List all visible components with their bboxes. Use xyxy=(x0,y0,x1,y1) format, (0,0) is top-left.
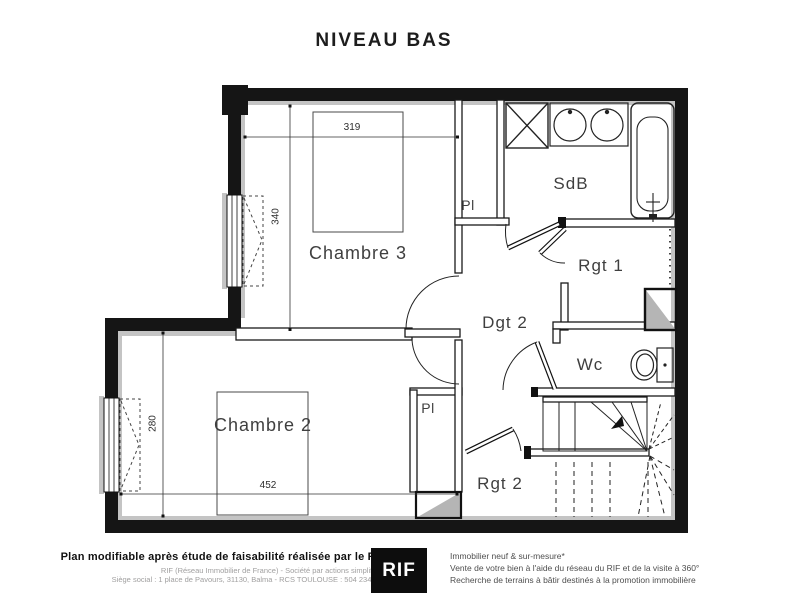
room-label-sdb: SdB xyxy=(541,174,601,194)
footer-fineprint-1: RIF (Réseau Immobilier de France) - Soci… xyxy=(52,566,386,575)
dimension-452: 452 xyxy=(248,480,288,491)
wall-lining xyxy=(99,101,675,520)
page-title: NIVEAU BAS xyxy=(254,30,514,52)
room-label-chambre-2: Chambre 2 xyxy=(205,415,321,436)
room-label-chambre-3: Chambre 3 xyxy=(300,243,416,264)
room-label-rgt-2: Rgt 2 xyxy=(465,474,535,494)
double-sink-icon xyxy=(550,103,628,146)
exterior-walls xyxy=(105,85,688,533)
footer-fineprint-2: Siège social : 1 place de Pavours, 31130… xyxy=(52,575,386,584)
doors xyxy=(406,224,565,452)
footer-service-2: Vente de votre bien à l'aide du réseau d… xyxy=(450,562,760,574)
room-label-wc: Wc xyxy=(560,355,620,375)
room-label-pl-top: Pl xyxy=(455,197,481,213)
page: { "title": "NIVEAU BAS", "rooms": { "cha… xyxy=(0,0,800,600)
dimension-280: 280 xyxy=(148,409,159,439)
duct-pl-bottom xyxy=(416,492,461,518)
footer-service-3: Recherche de terrains à bâtir destinés à… xyxy=(450,574,760,586)
room-label-rgt-1: Rgt 1 xyxy=(566,256,636,276)
toilet-icon xyxy=(631,348,673,382)
rif-logo-text: RIF xyxy=(382,560,416,582)
room-label-pl-bottom: Pl xyxy=(415,400,441,416)
room-label-dgt-2: Dgt 2 xyxy=(470,313,540,333)
floor-plan-drawing xyxy=(0,0,800,600)
footer-right-block: Immobilier neuf & sur-mesure* Vente de v… xyxy=(450,550,760,586)
dimension-nodes xyxy=(120,105,460,518)
dimension-319: 319 xyxy=(332,122,372,133)
footer-service-1: Immobilier neuf & sur-mesure* xyxy=(450,550,760,562)
rif-logo: RIF xyxy=(371,548,427,593)
bathtub-icon xyxy=(631,103,674,222)
shower-icon xyxy=(506,103,548,148)
footer-headline: Plan modifiable après étude de faisabili… xyxy=(52,551,386,563)
dimension-lines xyxy=(121,106,458,516)
bed-chambre-2 xyxy=(217,392,308,515)
footer-left-block: Plan modifiable après étude de faisabili… xyxy=(52,551,386,584)
staircase xyxy=(543,402,674,517)
dimension-340: 340 xyxy=(271,202,282,232)
